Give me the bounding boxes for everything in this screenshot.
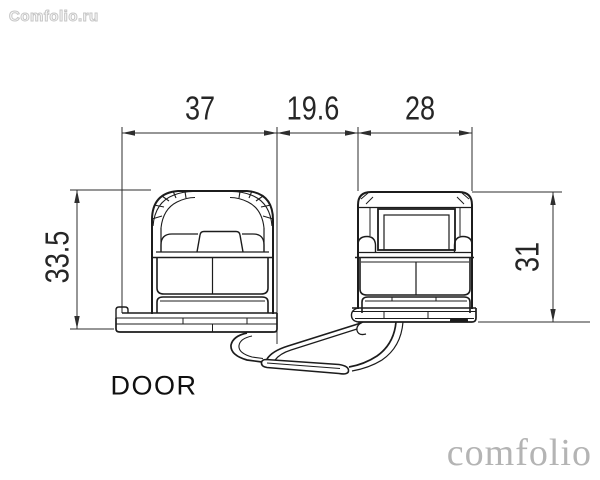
dimension-lines [70, 127, 590, 344]
dimension-arrowheads [74, 130, 555, 329]
hinge-arm [231, 322, 403, 374]
door-label: DOOR [111, 373, 198, 400]
right-mounting-wing [351, 192, 476, 323]
watermark-top-left: Comfolio.ru [9, 8, 99, 25]
dimension-label-wing-height: 31 [511, 242, 544, 272]
left-hinge-cup [116, 191, 277, 332]
dimension-label-gap-width: 19.6 [287, 92, 340, 125]
hinge-cross-section-drawing [0, 0, 600, 480]
watermark-bottom-right: comfolio [447, 434, 592, 472]
dimension-label-wing-width: 28 [405, 92, 435, 125]
dimension-label-cup-width: 37 [185, 92, 215, 125]
drawing-canvas: 37 19.6 28 33.5 31 DOOR Comfolio.ru comf… [0, 0, 600, 480]
dimension-label-cup-height: 33.5 [41, 231, 74, 284]
